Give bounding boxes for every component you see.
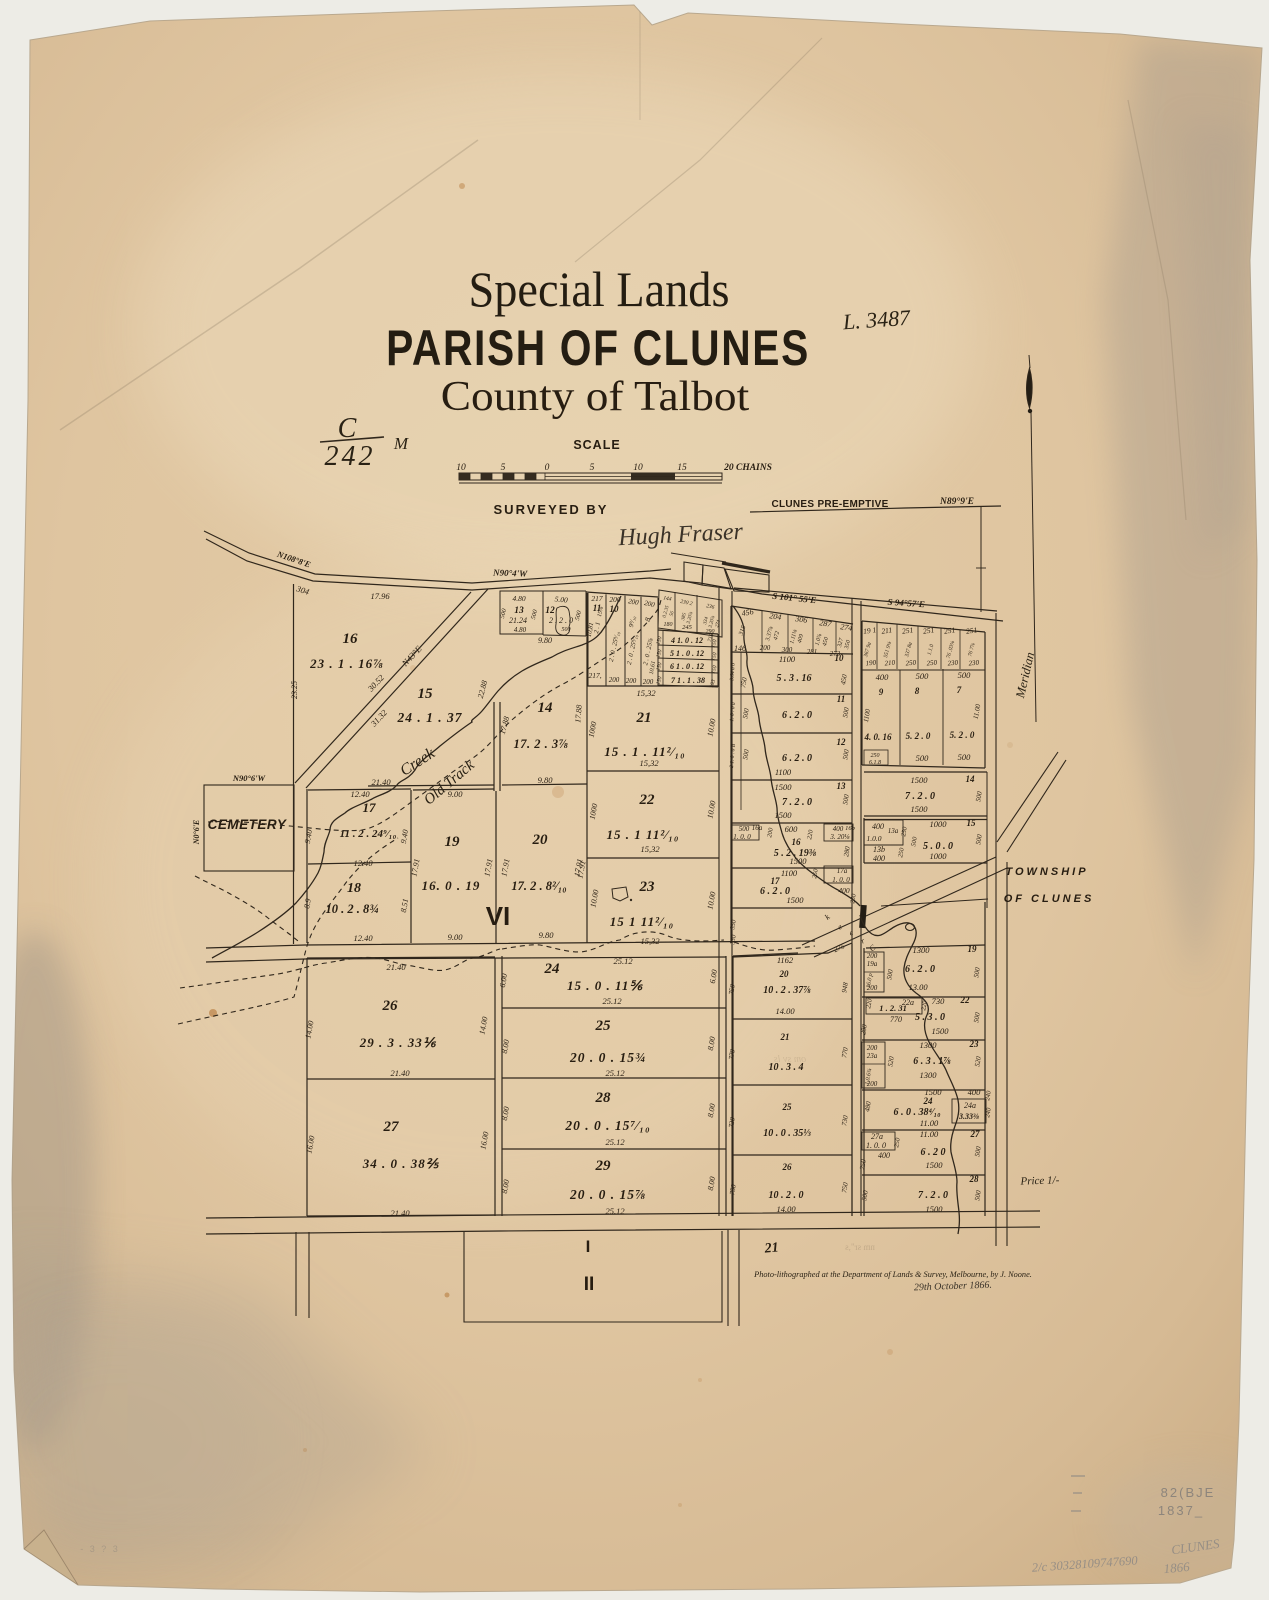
svg-text:Special Lands: Special Lands xyxy=(469,262,730,317)
svg-text:11 . 2 . 24⁹⁄₁₀: 11 . 2 . 24⁹⁄₁₀ xyxy=(340,828,397,840)
svg-text:15,32: 15,32 xyxy=(640,844,660,854)
svg-text:7 . 2 . 0: 7 . 2 . 0 xyxy=(918,1190,948,1201)
svg-text:12: 12 xyxy=(837,737,847,747)
svg-text:230: 230 xyxy=(947,659,959,668)
svg-text:230: 230 xyxy=(968,659,980,668)
svg-text:County of Talbot: County of Talbot xyxy=(441,373,749,419)
svg-text:16b: 16b xyxy=(845,825,856,832)
svg-text:14.00: 14.00 xyxy=(775,1006,795,1016)
svg-text:20 CHAINS: 20 CHAINS xyxy=(723,463,772,473)
svg-text:1300: 1300 xyxy=(920,1070,938,1080)
svg-text:20: 20 xyxy=(779,969,790,979)
svg-text:N90°4'W: N90°4'W xyxy=(492,567,528,578)
svg-text:10 . 2 . 0: 10 . 2 . 0 xyxy=(769,1190,804,1201)
svg-text:26: 26 xyxy=(782,1162,793,1172)
svg-text:1 . 2. 31: 1 . 2. 31 xyxy=(879,1003,907,1013)
svg-text:6.1.8: 6.1.8 xyxy=(869,760,881,766)
svg-text:25.12: 25.12 xyxy=(613,956,633,966)
svg-text:9.80: 9.80 xyxy=(538,636,552,645)
svg-text:PARISH OF CLUNES: PARISH OF CLUNES xyxy=(386,320,810,376)
svg-text:200: 200 xyxy=(867,1044,878,1052)
svg-text:13a: 13a xyxy=(888,827,899,835)
svg-text:6 . 2 0: 6 . 2 0 xyxy=(921,1147,946,1158)
svg-text:250: 250 xyxy=(926,659,938,668)
svg-text:730: 730 xyxy=(932,996,946,1006)
svg-text:211: 211 xyxy=(881,625,893,635)
svg-text:9.80: 9.80 xyxy=(539,930,555,940)
svg-text:17. 2 . 3⅞: 17. 2 . 3⅞ xyxy=(514,737,569,751)
svg-text:251: 251 xyxy=(922,625,934,635)
svg-text:500: 500 xyxy=(562,627,571,633)
svg-text:200: 200 xyxy=(626,677,637,685)
svg-text:17.88: 17.88 xyxy=(573,704,584,723)
svg-text:Photo-lithographed at the Depa: Photo-lithographed at the Department of … xyxy=(753,1270,1032,1279)
svg-text:20 . 0 . 15¾: 20 . 0 . 15¾ xyxy=(569,1050,646,1065)
svg-text:23 . 1 . 16⅞: 23 . 1 . 16⅞ xyxy=(309,656,384,671)
svg-text:II: II xyxy=(584,1274,595,1295)
svg-text:N89°9'E: N89°9'E xyxy=(939,496,974,507)
svg-text:5 . 3 . 0: 5 . 3 . 0 xyxy=(915,1012,945,1023)
svg-text:6 . 2 . 0: 6 . 2 . 0 xyxy=(905,964,935,975)
svg-text:OF CLUNES: OF CLUNES xyxy=(1004,893,1095,905)
svg-text:21: 21 xyxy=(636,710,652,726)
svg-text:25.12: 25.12 xyxy=(605,1068,625,1078)
svg-text:1500: 1500 xyxy=(926,1204,944,1214)
svg-text:1000: 1000 xyxy=(930,851,948,861)
svg-text:1100: 1100 xyxy=(781,868,798,878)
svg-text:15: 15 xyxy=(677,463,687,473)
svg-text:nm sr",s: nm sr",s xyxy=(845,1242,875,1252)
svg-text:22: 22 xyxy=(639,792,656,808)
svg-text:11: 11 xyxy=(837,694,846,704)
svg-text:27: 27 xyxy=(383,1119,400,1135)
svg-text:306: 306 xyxy=(794,614,808,625)
svg-text:11.00: 11.00 xyxy=(920,1129,939,1139)
svg-text:1. 0. 0: 1. 0. 0 xyxy=(866,1141,886,1150)
svg-text:23.25: 23.25 xyxy=(290,681,299,699)
svg-text:1500: 1500 xyxy=(926,1160,944,1170)
svg-text:180: 180 xyxy=(664,622,673,628)
svg-text:600: 600 xyxy=(785,824,799,834)
svg-text:23a: 23a xyxy=(867,1052,878,1060)
svg-text:15: 15 xyxy=(418,686,434,702)
svg-text:7: 7 xyxy=(957,685,962,695)
svg-text:1866: 1866 xyxy=(1163,1559,1191,1576)
svg-text:500: 500 xyxy=(739,825,750,833)
svg-text:13: 13 xyxy=(837,781,847,791)
svg-text:21.40: 21.40 xyxy=(390,1208,410,1218)
svg-text:3.33⅜: 3.33⅜ xyxy=(958,1112,979,1121)
svg-text:82(BJE: 82(BJE xyxy=(1161,1485,1216,1500)
svg-text:200: 200 xyxy=(867,984,878,992)
svg-text:400: 400 xyxy=(968,1087,982,1097)
svg-text:5. 2 . 0: 5. 2 . 0 xyxy=(906,731,931,741)
svg-text:28: 28 xyxy=(969,1174,980,1184)
svg-text:12.40: 12.40 xyxy=(353,933,373,943)
svg-text:274: 274 xyxy=(840,622,853,633)
svg-text:10 . 2 . 8¾: 10 . 2 . 8¾ xyxy=(325,902,378,916)
svg-text:15,32: 15,32 xyxy=(639,758,659,768)
svg-text:250: 250 xyxy=(905,659,917,668)
svg-text:8: 8 xyxy=(915,686,920,696)
svg-text:TOWNSHIP: TOWNSHIP xyxy=(1005,866,1088,878)
svg-text:SCALE: SCALE xyxy=(573,438,620,452)
svg-text:9.80: 9.80 xyxy=(538,775,554,785)
svg-text:4 1. 0 . 12: 4 1. 0 . 12 xyxy=(670,636,703,645)
svg-text:9.00: 9.00 xyxy=(448,932,464,942)
svg-text:21.40: 21.40 xyxy=(371,777,391,787)
svg-text:27: 27 xyxy=(970,1129,981,1139)
svg-text:27a: 27a xyxy=(871,1132,883,1141)
svg-text:1500: 1500 xyxy=(911,804,929,814)
svg-text:500: 500 xyxy=(916,671,930,681)
svg-text:19: 19 xyxy=(968,944,978,954)
svg-text:4.80: 4.80 xyxy=(512,594,525,603)
svg-text:23: 23 xyxy=(969,1039,980,1049)
svg-text:10 . 0 . 35⅓: 10 . 0 . 35⅓ xyxy=(763,1128,811,1139)
svg-text:29 . 3 . 33⅙: 29 . 3 . 33⅙ xyxy=(359,1035,437,1050)
svg-text:251: 251 xyxy=(943,625,955,635)
svg-text:1162: 1162 xyxy=(777,955,794,965)
svg-text:200: 200 xyxy=(760,644,771,652)
svg-text:21.24: 21.24 xyxy=(509,616,527,625)
svg-text:24a: 24a xyxy=(964,1101,976,1110)
svg-text:5 . 3 . 16: 5 . 3 . 16 xyxy=(777,673,812,684)
svg-text:200: 200 xyxy=(609,676,620,684)
svg-text:11.00: 11.00 xyxy=(920,1118,939,1128)
svg-text:6 . 0 . 38⁴⁄₁₀: 6 . 0 . 38⁴⁄₁₀ xyxy=(893,1107,941,1118)
svg-text:19: 19 xyxy=(445,834,461,850)
svg-text:13.00: 13.00 xyxy=(908,982,928,992)
svg-text:5: 5 xyxy=(590,463,595,473)
svg-text:6 . 2 . 0: 6 . 2 . 0 xyxy=(782,753,812,764)
svg-text:770: 770 xyxy=(890,1015,902,1024)
svg-text:24: 24 xyxy=(544,961,561,977)
svg-text:25.12: 25.12 xyxy=(605,1137,625,1147)
svg-text:19a: 19a xyxy=(867,960,878,968)
svg-text:SURVEYED BY: SURVEYED BY xyxy=(494,502,609,517)
svg-text:5 1 . 0 . 12: 5 1 . 0 . 12 xyxy=(670,649,704,658)
svg-text:7 . 2 . 0: 7 . 2 . 0 xyxy=(782,797,812,808)
svg-text:10: 10 xyxy=(633,463,643,473)
svg-text:5.00: 5.00 xyxy=(554,594,568,604)
svg-text:400: 400 xyxy=(873,854,885,863)
svg-text:21.40: 21.40 xyxy=(390,1068,410,1078)
svg-text:217: 217 xyxy=(591,594,603,603)
svg-text:15,32: 15,32 xyxy=(636,688,656,698)
svg-text:24 . 1 . 37: 24 . 1 . 37 xyxy=(397,710,463,725)
svg-text:400: 400 xyxy=(833,825,844,833)
svg-text:7 . 2 . 0: 7 . 2 . 0 xyxy=(905,791,935,802)
svg-text:6 . 2 . 0: 6 . 2 . 0 xyxy=(760,886,790,897)
svg-text:10: 10 xyxy=(835,653,845,663)
svg-text:17.96: 17.96 xyxy=(370,591,390,601)
svg-text:4. 0. 16: 4. 0. 16 xyxy=(864,732,893,742)
svg-text:190: 190 xyxy=(865,659,877,668)
svg-text:10 . 3 . 4: 10 . 3 . 4 xyxy=(769,1062,804,1073)
svg-text:200: 200 xyxy=(643,678,654,686)
svg-text:L. 3487: L. 3487 xyxy=(841,305,912,335)
svg-text:1500: 1500 xyxy=(932,1026,950,1036)
svg-text:8.9: 8.9 xyxy=(302,898,313,909)
svg-text:13: 13 xyxy=(514,606,524,616)
svg-text:6 . 3 . 1⅞: 6 . 3 . 1⅞ xyxy=(913,1056,951,1067)
svg-text:15 . 1 11²⁄₁₀: 15 . 1 11²⁄₁₀ xyxy=(607,827,680,842)
svg-text:25: 25 xyxy=(595,1018,612,1034)
svg-text:26: 26 xyxy=(382,998,399,1014)
svg-text:21: 21 xyxy=(763,1240,779,1256)
svg-text:245: 245 xyxy=(682,624,693,631)
svg-text:16: 16 xyxy=(792,837,802,847)
svg-text:15,32: 15,32 xyxy=(640,936,660,946)
svg-text:- 3 ? 3: - 3 ? 3 xyxy=(80,1544,120,1554)
svg-text:VI: VI xyxy=(486,901,511,931)
svg-text:10 . 2 . 37⅞: 10 . 2 . 37⅞ xyxy=(763,985,811,996)
svg-text:I: I xyxy=(586,1237,591,1256)
svg-text:12: 12 xyxy=(545,606,555,616)
svg-text:17a: 17a xyxy=(837,867,848,875)
svg-text:287: 287 xyxy=(819,618,833,629)
svg-text:500: 500 xyxy=(958,752,972,762)
svg-text:15 . 0 . 11⅚: 15 . 0 . 11⅚ xyxy=(567,978,643,993)
svg-text:16. 0 . 19: 16. 0 . 19 xyxy=(422,878,481,893)
svg-text:25.12: 25.12 xyxy=(605,1206,625,1216)
svg-text:1837_: 1837_ xyxy=(1158,1503,1204,1518)
svg-text:16: 16 xyxy=(343,631,359,647)
svg-text:1. 0. 0: 1. 0. 0 xyxy=(832,876,850,884)
svg-text:1100: 1100 xyxy=(775,767,792,777)
svg-text:17: 17 xyxy=(771,876,781,886)
svg-text:M: M xyxy=(393,434,409,453)
svg-text:19 1: 19 1 xyxy=(863,625,877,636)
svg-text:300: 300 xyxy=(781,646,793,654)
svg-text:1500: 1500 xyxy=(911,775,929,785)
svg-text:1100: 1100 xyxy=(779,654,796,664)
svg-text:251: 251 xyxy=(965,625,977,635)
svg-text:20: 20 xyxy=(532,832,549,848)
svg-text:3. 20⅛: 3. 20⅛ xyxy=(829,833,850,841)
svg-text:17. 2 . 8²⁄₁₀: 17. 2 . 8²⁄₁₀ xyxy=(511,879,566,893)
svg-text:200: 200 xyxy=(867,952,878,960)
svg-text:5. 2 . 0: 5. 2 . 0 xyxy=(950,730,975,740)
svg-text:15 . 1 . 11²⁄₁₀: 15 . 1 . 11²⁄₁₀ xyxy=(604,744,685,759)
svg-text:12.40: 12.40 xyxy=(350,789,370,799)
svg-text:24: 24 xyxy=(923,1096,934,1106)
svg-text:9: 9 xyxy=(879,687,884,697)
svg-text:15 1 11²⁄₁₀: 15 1 11²⁄₁₀ xyxy=(610,914,674,929)
svg-text:20 . 0 . 15⁷⁄₁₀: 20 . 0 . 15⁷⁄₁₀ xyxy=(564,1118,650,1133)
svg-text:210: 210 xyxy=(884,659,896,668)
svg-text:5: 5 xyxy=(501,463,506,473)
svg-text:1000: 1000 xyxy=(930,819,948,829)
svg-text:1500: 1500 xyxy=(787,895,805,905)
svg-text:21: 21 xyxy=(780,1032,790,1042)
svg-text:0: 0 xyxy=(545,463,550,473)
svg-text:500: 500 xyxy=(916,753,930,763)
svg-text:7 1 . 1 . 38: 7 1 . 1 . 38 xyxy=(671,676,705,685)
svg-text:250: 250 xyxy=(871,753,880,759)
svg-text:14: 14 xyxy=(966,774,976,784)
svg-text:204: 204 xyxy=(769,611,782,622)
svg-text:217,: 217, xyxy=(588,671,601,680)
svg-text:400: 400 xyxy=(878,1151,890,1160)
svg-text:22: 22 xyxy=(960,995,971,1005)
svg-text:4.80: 4.80 xyxy=(514,626,527,634)
svg-text:25.12: 25.12 xyxy=(602,996,622,1006)
svg-text:1.0.0: 1.0.0 xyxy=(867,834,882,843)
svg-text:N0°6'E: N0°6'E xyxy=(192,820,201,846)
svg-text:6 1 . 0 . 12: 6 1 . 0 . 12 xyxy=(670,662,704,671)
svg-text:N90°6'W: N90°6'W xyxy=(232,773,267,783)
svg-text:34 . 0 . 38⅖: 34 . 0 . 38⅖ xyxy=(362,1156,440,1171)
svg-text:1300: 1300 xyxy=(913,945,931,955)
svg-text:242: 242 xyxy=(325,441,376,472)
svg-text:6 . 2 . 0: 6 . 2 . 0 xyxy=(782,710,812,721)
svg-text:400: 400 xyxy=(876,672,890,682)
svg-text:16a: 16a xyxy=(752,824,763,832)
svg-text:400: 400 xyxy=(872,822,884,831)
svg-text:29: 29 xyxy=(595,1158,612,1174)
svg-text:18: 18 xyxy=(347,881,361,896)
svg-text:28: 28 xyxy=(595,1090,612,1106)
svg-text:500: 500 xyxy=(958,670,972,680)
svg-text:21.40: 21.40 xyxy=(386,962,406,972)
svg-text:251: 251 xyxy=(901,625,913,635)
svg-text:200: 200 xyxy=(867,1080,878,1088)
svg-text:281: 281 xyxy=(807,648,818,656)
svg-text:1. 0. 0: 1. 0. 0 xyxy=(733,833,751,841)
svg-text:Price 1/-: Price 1/- xyxy=(1019,1174,1060,1187)
svg-text:14.00: 14.00 xyxy=(776,1204,796,1214)
svg-text:23: 23 xyxy=(639,879,656,895)
svg-text:25: 25 xyxy=(782,1102,793,1112)
svg-text:13b: 13b xyxy=(873,845,885,854)
svg-text:1500: 1500 xyxy=(775,782,793,792)
svg-text:CEMETERY: CEMETERY xyxy=(208,817,288,832)
svg-text:15: 15 xyxy=(967,818,977,828)
svg-text:20 . 0 . 15⅞: 20 . 0 . 15⅞ xyxy=(569,1187,646,1202)
svg-text:14: 14 xyxy=(538,700,554,716)
svg-text:10: 10 xyxy=(456,463,466,473)
